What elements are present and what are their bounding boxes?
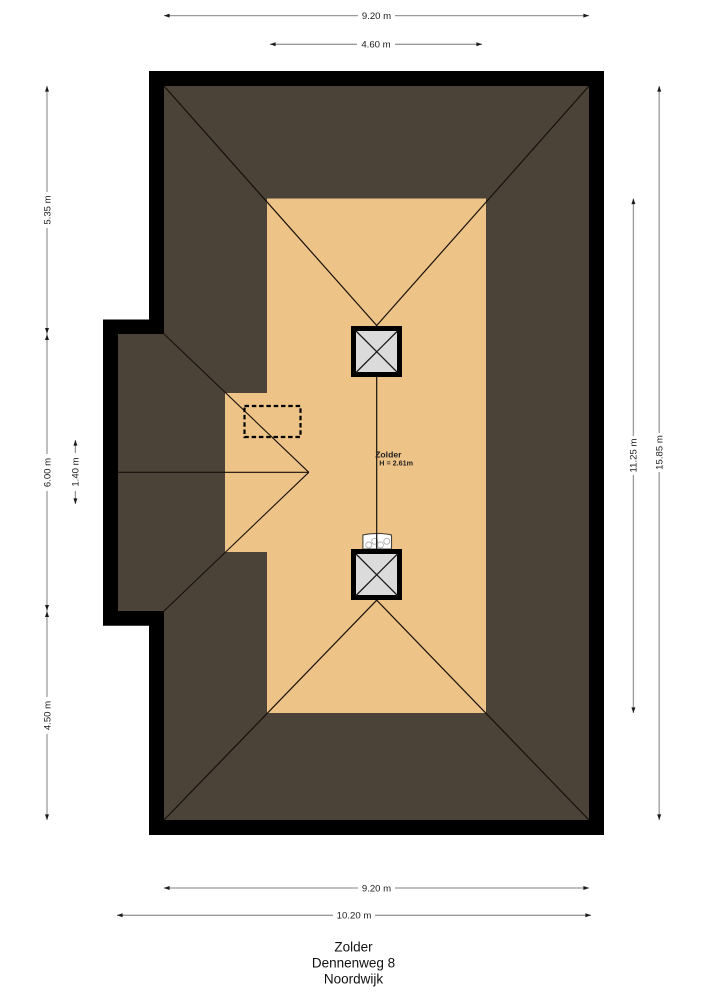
svg-text:9.20 m: 9.20 m: [362, 11, 391, 22]
svg-text:Zolder: Zolder: [334, 940, 373, 955]
svg-text:1.40 m: 1.40 m: [71, 457, 82, 486]
svg-text:H = 2.61m: H = 2.61m: [379, 459, 413, 468]
svg-text:15.85 m: 15.85 m: [655, 435, 666, 470]
svg-text:Dennenweg 8: Dennenweg 8: [312, 956, 395, 971]
svg-text:4.50 m: 4.50 m: [42, 701, 53, 730]
svg-text:5.35 m: 5.35 m: [42, 195, 53, 224]
svg-text:9.20 m: 9.20 m: [362, 883, 391, 894]
svg-text:4.60 m: 4.60 m: [361, 40, 390, 51]
svg-text:11.25 m: 11.25 m: [629, 439, 640, 473]
svg-text:Noordwijk: Noordwijk: [324, 972, 384, 987]
svg-text:6.00 m: 6.00 m: [42, 458, 53, 487]
svg-text:10.20 m: 10.20 m: [337, 911, 372, 922]
